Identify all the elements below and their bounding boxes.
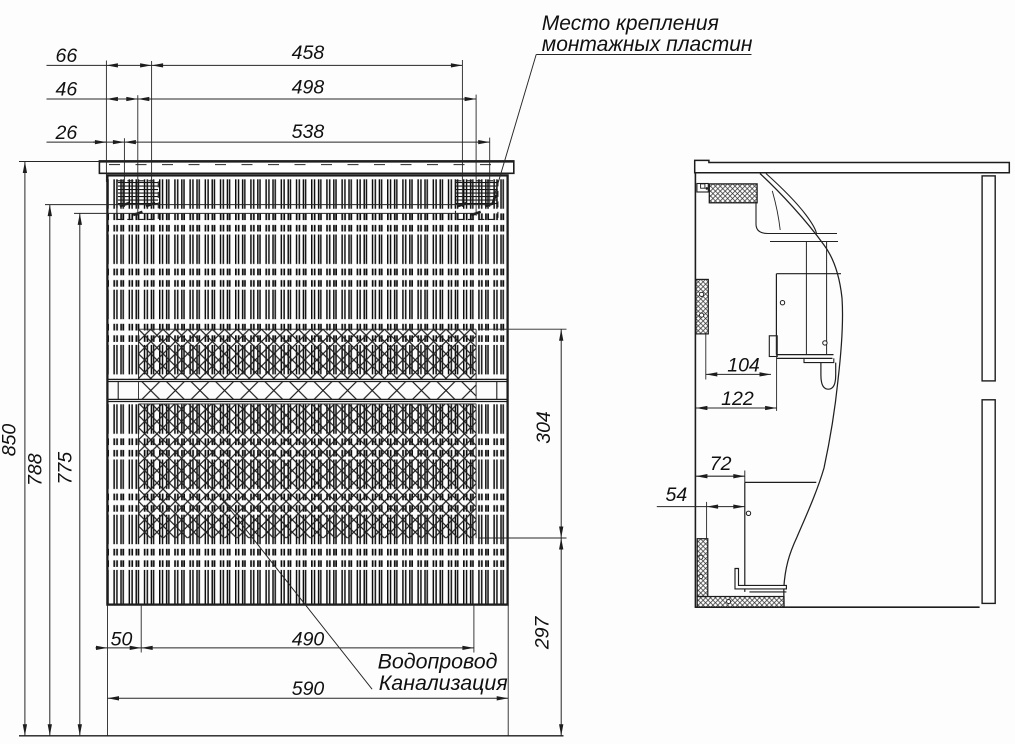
svg-text:304: 304 xyxy=(533,411,555,444)
svg-text:Канализация: Канализация xyxy=(379,671,508,695)
svg-text:122: 122 xyxy=(721,388,754,410)
svg-text:Водопровод: Водопровод xyxy=(378,649,498,673)
svg-text:Место крепления: Место крепления xyxy=(542,12,719,35)
svg-text:104: 104 xyxy=(727,354,760,376)
svg-text:монтажных пластин: монтажных пластин xyxy=(542,33,753,56)
svg-text:458: 458 xyxy=(292,42,325,64)
svg-text:490: 490 xyxy=(292,628,325,650)
svg-text:72: 72 xyxy=(710,453,732,475)
svg-text:50: 50 xyxy=(111,628,133,650)
svg-text:54: 54 xyxy=(666,484,688,506)
svg-text:538: 538 xyxy=(292,121,325,143)
svg-text:788: 788 xyxy=(25,453,47,486)
svg-text:26: 26 xyxy=(55,122,78,144)
svg-text:66: 66 xyxy=(56,45,78,67)
svg-text:46: 46 xyxy=(56,78,78,100)
svg-text:590: 590 xyxy=(292,678,325,700)
svg-text:775: 775 xyxy=(55,452,77,485)
svg-text:498: 498 xyxy=(292,77,325,99)
svg-text:297: 297 xyxy=(532,615,554,650)
svg-text:850: 850 xyxy=(0,424,21,457)
